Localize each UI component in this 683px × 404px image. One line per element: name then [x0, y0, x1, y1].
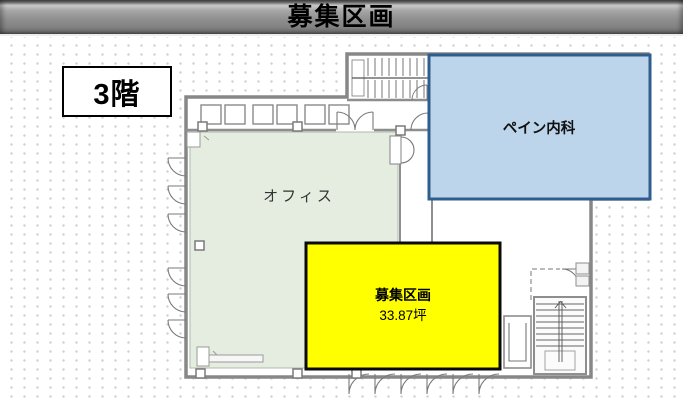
floor-plan: ペイン内科 オフィス 募集区画 33.87坪 [0, 0, 683, 404]
office-label: オフィス [263, 188, 335, 205]
floor-label-box: 3階 [62, 66, 172, 117]
page-title: 募集区画 [287, 1, 395, 33]
clinic-label: ペイン内科 [503, 119, 576, 137]
floor-label: 3階 [93, 71, 140, 113]
duct-shaft [576, 263, 589, 286]
title-bar: 募集区画 [0, 0, 683, 34]
vacant-label: 募集区画 [374, 287, 431, 303]
door-swing-icons-left [168, 158, 186, 338]
stairs-bottom-icon [534, 297, 586, 374]
elevator-icon [504, 316, 531, 368]
vacant-region: 募集区画 33.87坪 [306, 243, 500, 369]
vacant-area-label: 33.87坪 [379, 308, 426, 323]
clinic-region: ペイン内科 [429, 55, 650, 199]
